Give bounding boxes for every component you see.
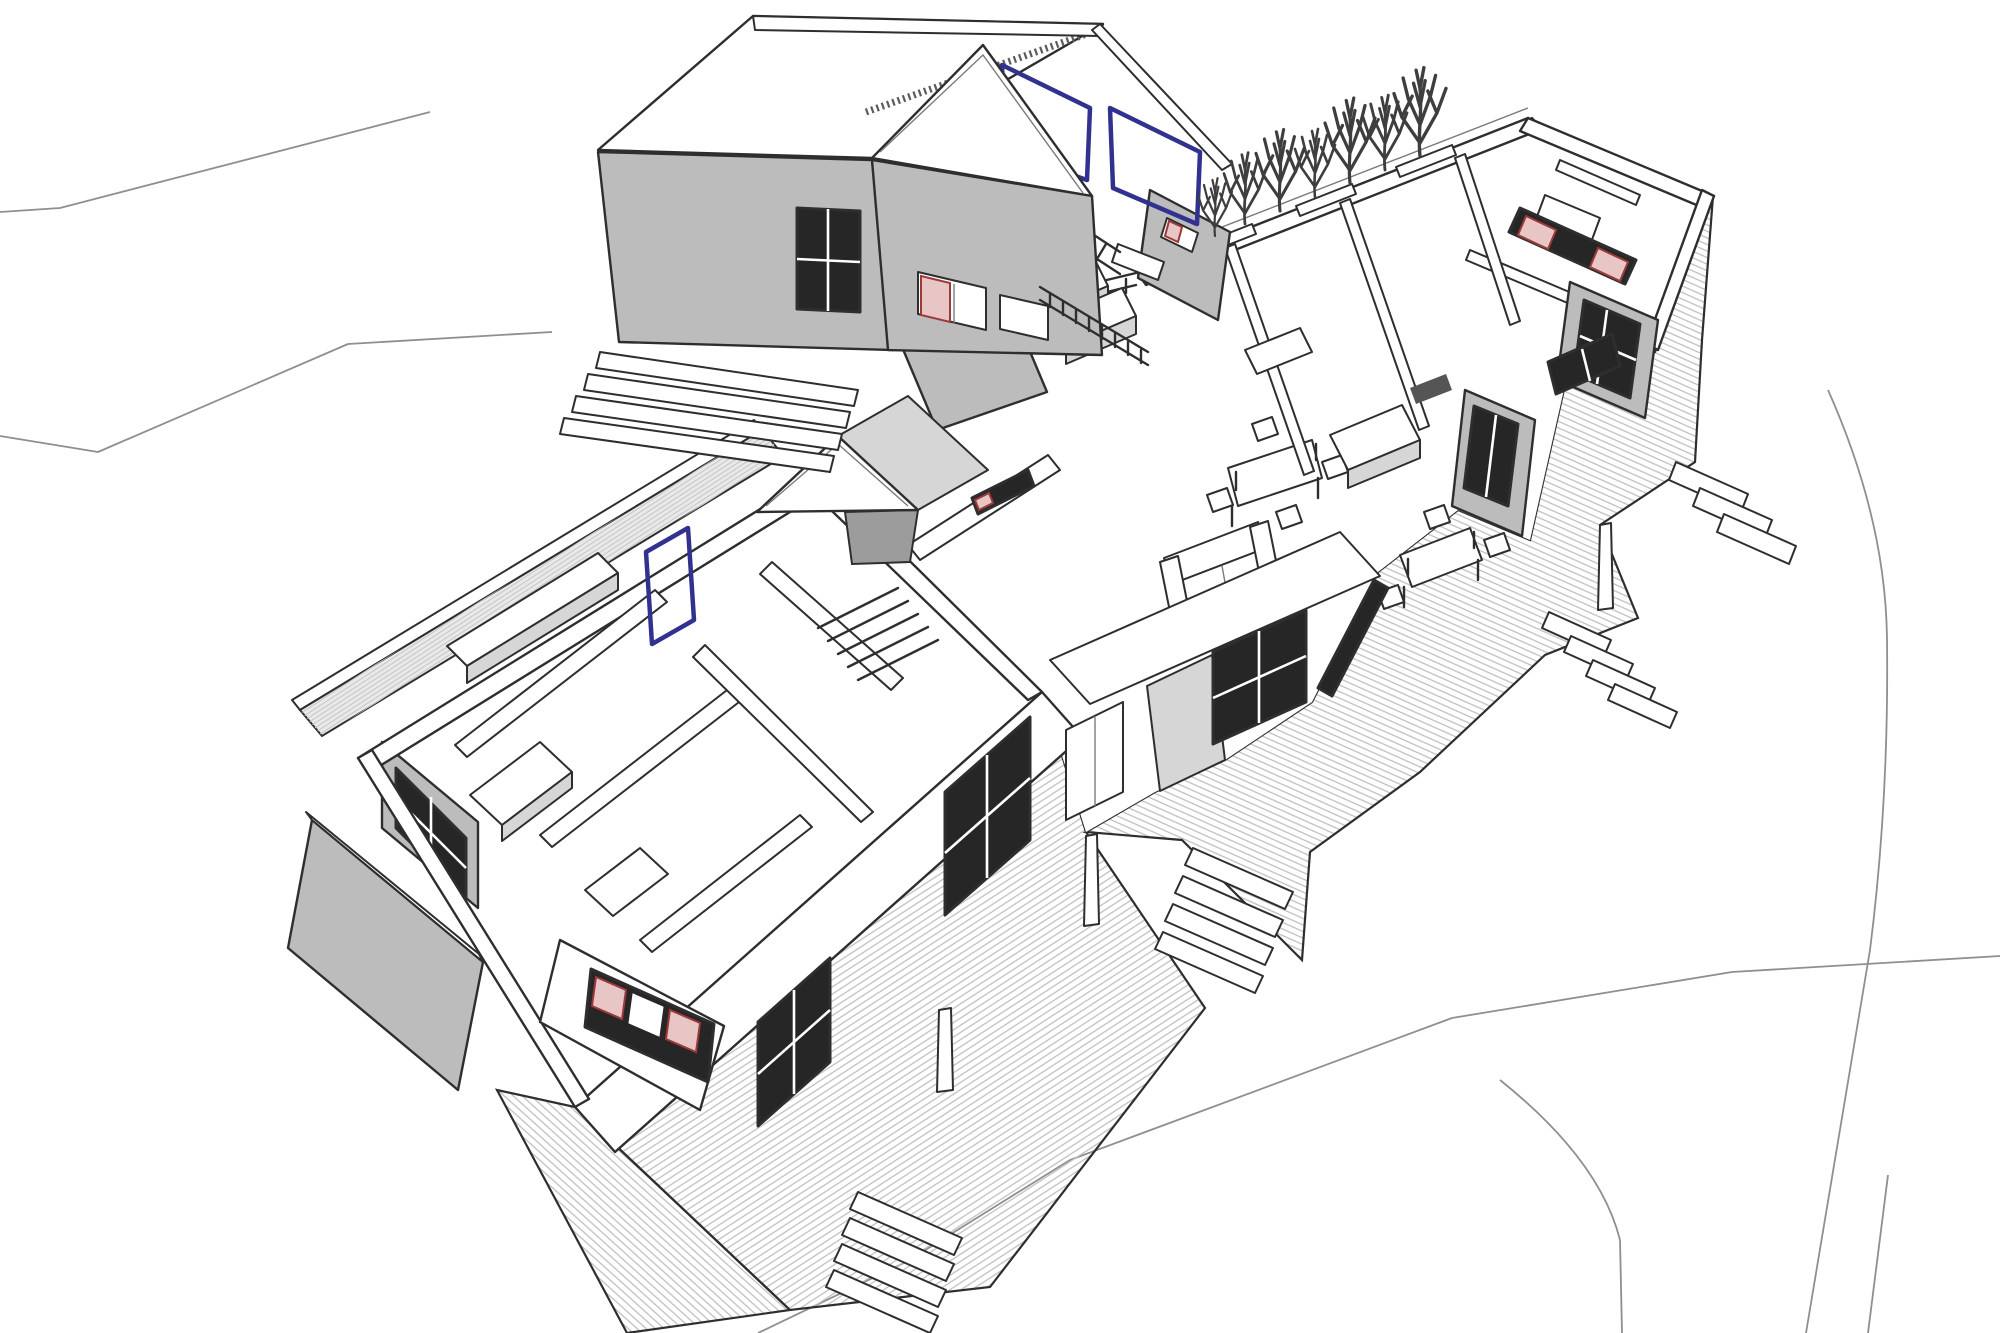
bollard bbox=[937, 1008, 953, 1092]
bollard bbox=[1598, 523, 1613, 610]
architectural-drawing: 3D axonometric cutaway floor plan drawin… bbox=[0, 0, 2000, 1333]
contour-line bbox=[0, 332, 552, 452]
red-accent-pane bbox=[921, 276, 950, 322]
contour-line bbox=[0, 112, 430, 212]
garage-entry-steps bbox=[560, 352, 858, 472]
cutaway-house-illustration: 3D axonometric cutaway floor plan drawin… bbox=[0, 0, 2000, 1333]
garage-window-4pane bbox=[797, 208, 860, 312]
contour-line bbox=[1070, 956, 2000, 1160]
contour-line bbox=[1500, 1080, 1622, 1333]
contour-line bbox=[1806, 390, 1887, 1333]
shrub bbox=[1363, 95, 1407, 170]
stairs-right-top bbox=[1669, 462, 1796, 564]
shrub bbox=[1256, 129, 1304, 211]
porch-recess bbox=[845, 510, 918, 564]
bollard bbox=[1084, 834, 1099, 926]
contour-line bbox=[1868, 1175, 1888, 1333]
